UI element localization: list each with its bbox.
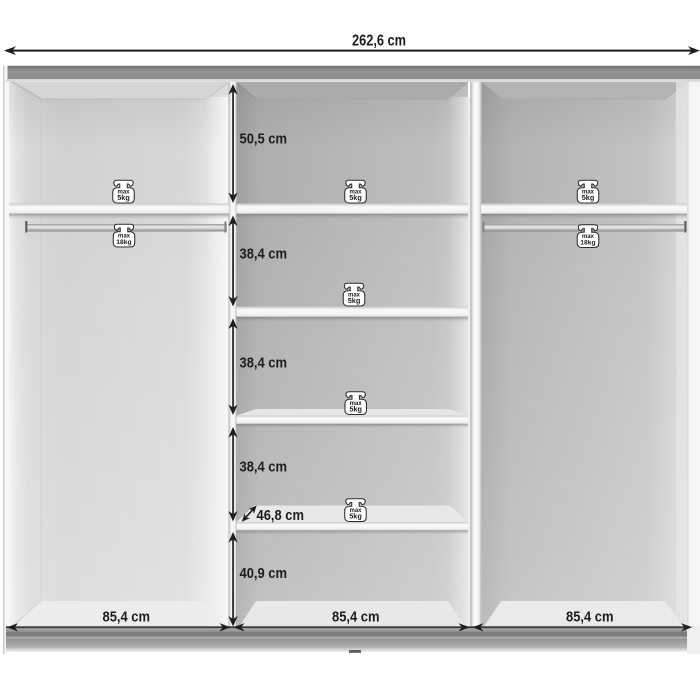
svg-text:5kg: 5kg — [349, 193, 362, 202]
svg-text:262,6 cm: 262,6 cm — [352, 33, 406, 50]
svg-text:5kg: 5kg — [349, 512, 362, 521]
svg-text:18kg: 18kg — [116, 239, 131, 246]
svg-text:85,4 cm: 85,4 cm — [332, 609, 380, 626]
svg-text:85,4 cm: 85,4 cm — [566, 609, 614, 626]
svg-text:max: max — [582, 234, 595, 240]
svg-text:5kg: 5kg — [348, 296, 361, 305]
svg-text:18kg: 18kg — [580, 240, 595, 247]
svg-text:50,5 cm: 50,5 cm — [240, 131, 288, 148]
svg-text:38,4 cm: 38,4 cm — [240, 458, 288, 475]
svg-text:46,8 cm: 46,8 cm — [257, 507, 305, 524]
svg-text:5kg: 5kg — [117, 193, 130, 202]
svg-text:5kg: 5kg — [582, 193, 595, 202]
svg-text:38,4 cm: 38,4 cm — [240, 354, 288, 371]
svg-text:5kg: 5kg — [349, 405, 362, 414]
svg-text:85,4 cm: 85,4 cm — [103, 609, 151, 626]
svg-text:38,4 cm: 38,4 cm — [240, 245, 288, 262]
svg-text:40,9 cm: 40,9 cm — [240, 565, 288, 582]
svg-text:max: max — [118, 233, 131, 239]
